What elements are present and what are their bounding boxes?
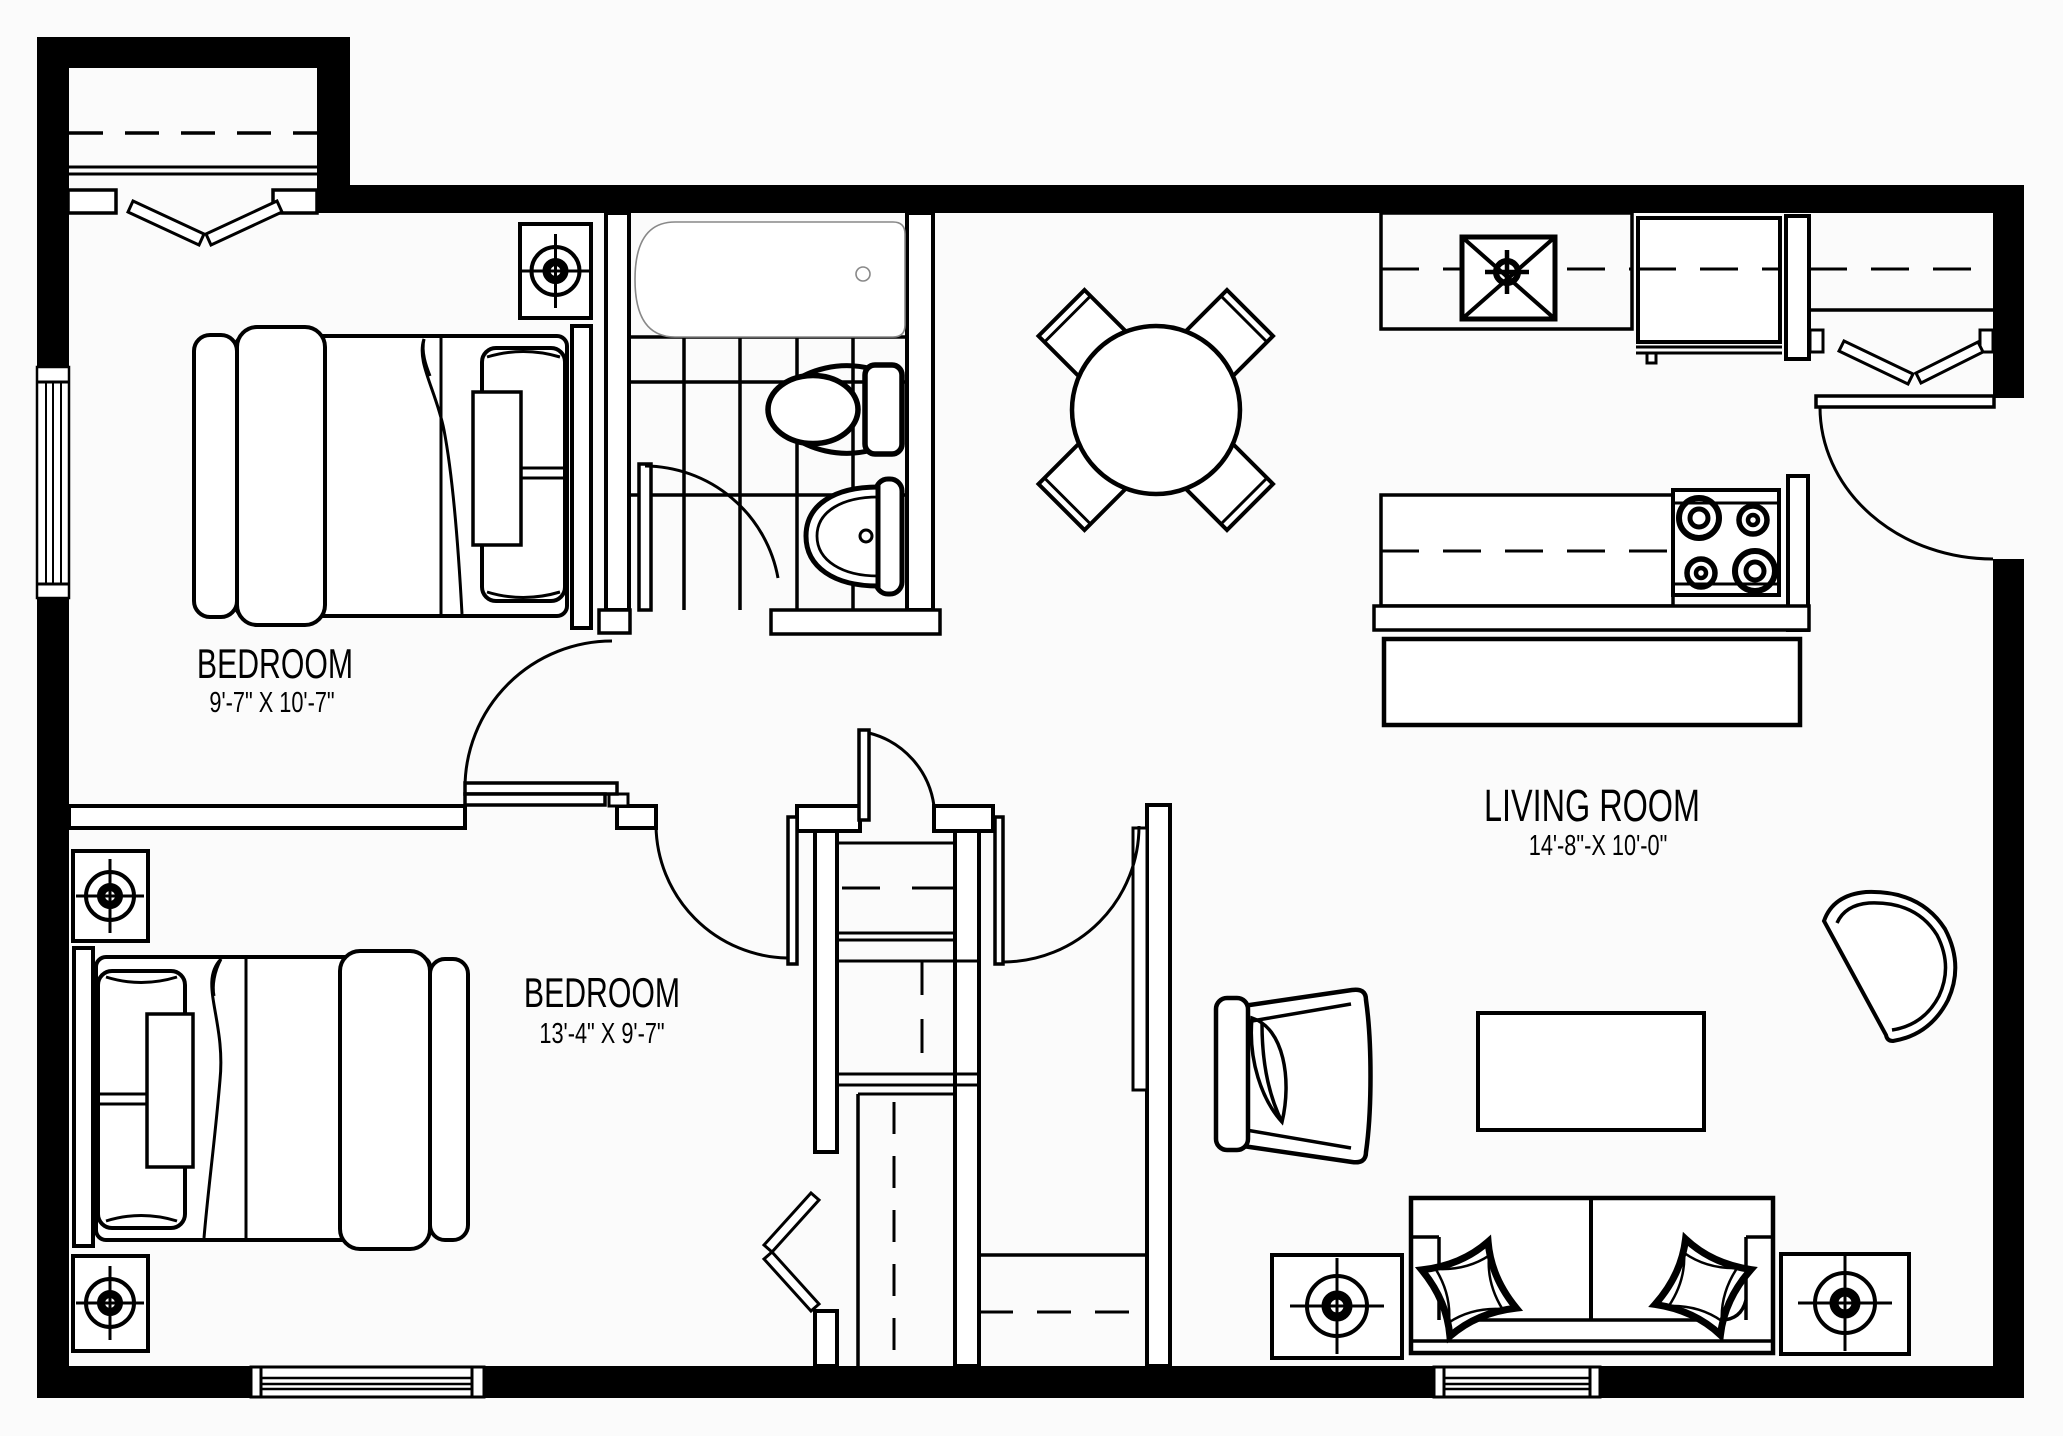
svg-text:9'-7" X 10'-7": 9'-7" X 10'-7" bbox=[209, 687, 334, 719]
svg-text:13'-4" X 9'-7": 13'-4" X 9'-7" bbox=[539, 1018, 664, 1050]
svg-text:14'-8"-X 10'-0": 14'-8"-X 10'-0" bbox=[1529, 830, 1668, 862]
svg-text:BEDROOM: BEDROOM bbox=[197, 640, 353, 687]
svg-text:BEDROOM: BEDROOM bbox=[524, 969, 680, 1016]
svg-text:LIVING ROOM: LIVING ROOM bbox=[1484, 782, 1700, 831]
